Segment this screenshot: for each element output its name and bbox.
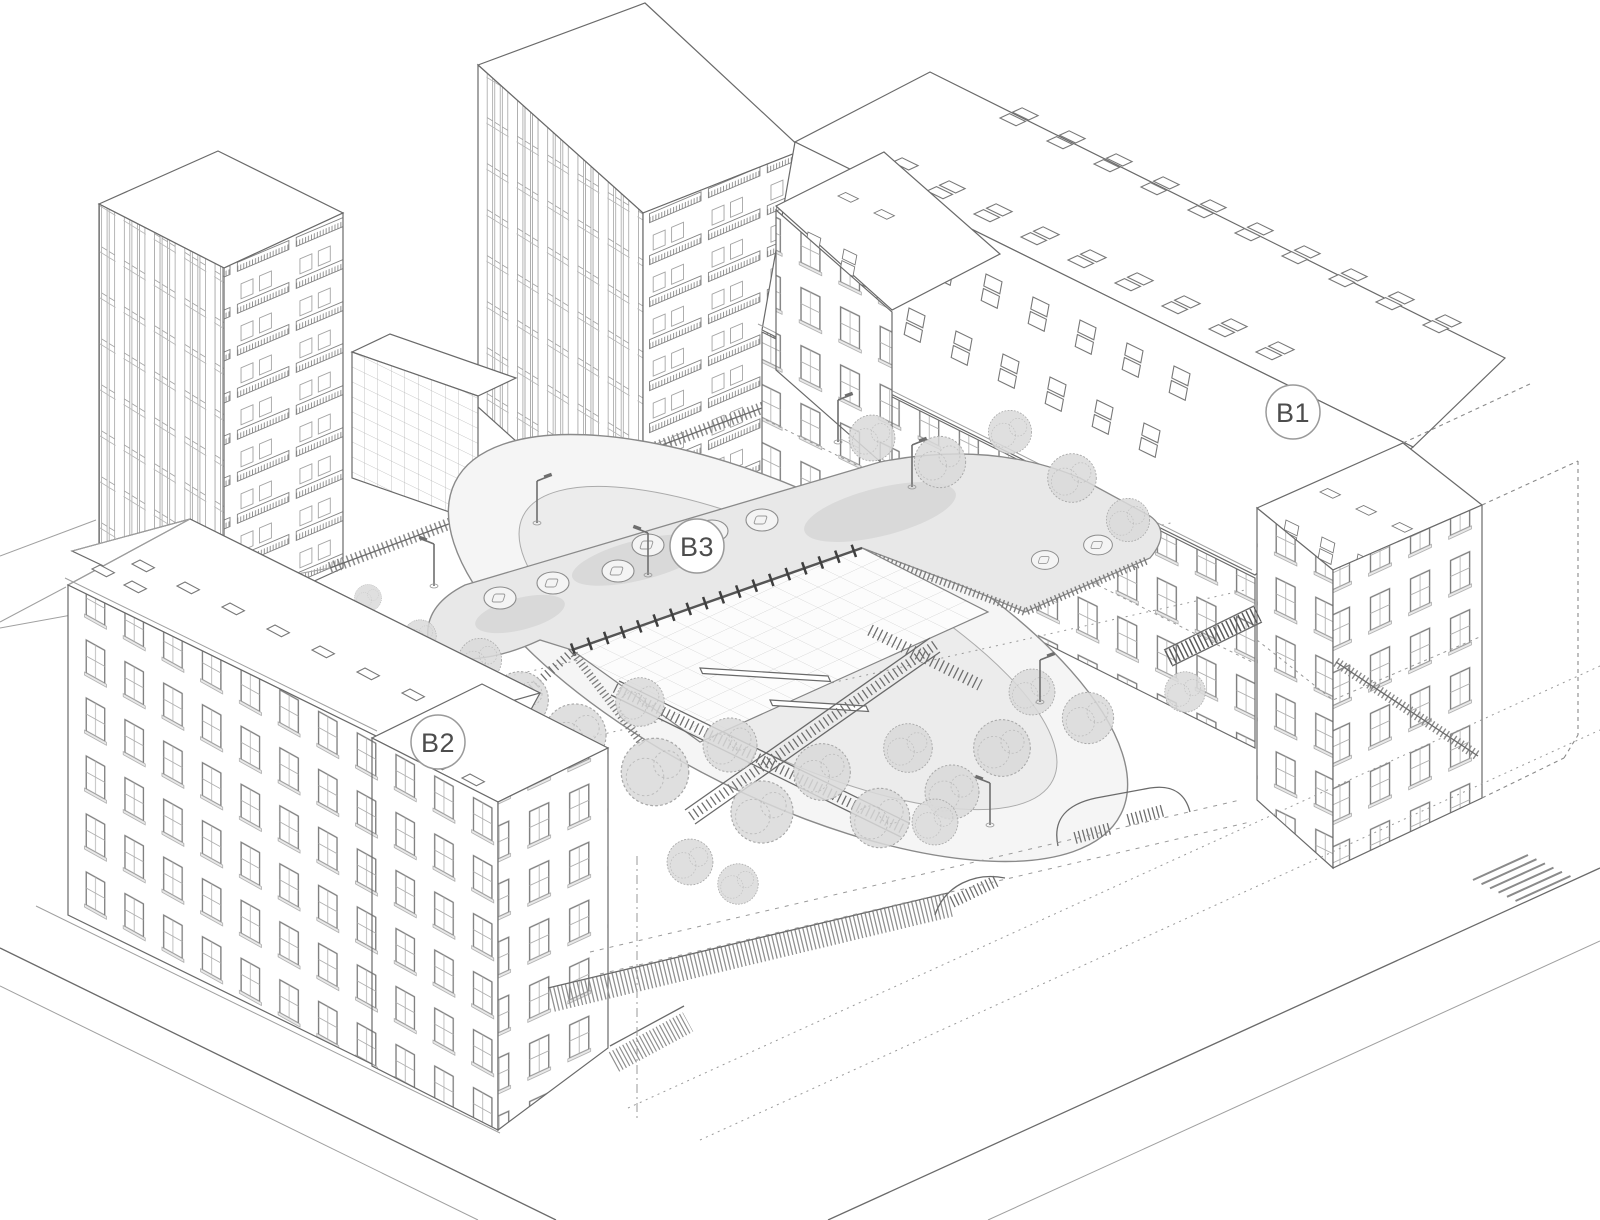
site-drawing: B1 B2 B3 bbox=[0, 0, 1600, 1220]
tree bbox=[974, 720, 1031, 777]
label-b3: B3 bbox=[670, 519, 724, 573]
tree bbox=[884, 724, 933, 773]
tree bbox=[703, 718, 757, 772]
label-b1-text: B1 bbox=[1276, 398, 1310, 428]
label-b1: B1 bbox=[1266, 385, 1320, 439]
tree bbox=[850, 788, 909, 847]
tree bbox=[849, 415, 895, 461]
b2-pavilion-facade-sw bbox=[372, 738, 498, 1130]
tree bbox=[1009, 669, 1055, 715]
tree bbox=[718, 864, 759, 905]
tree bbox=[1106, 498, 1149, 541]
tree bbox=[1062, 692, 1113, 743]
tree bbox=[914, 436, 965, 487]
tree bbox=[731, 781, 793, 843]
b2-end-pavilion bbox=[372, 684, 608, 1130]
tree bbox=[1048, 454, 1097, 503]
label-b3-text: B3 bbox=[680, 532, 714, 562]
tree bbox=[1165, 672, 1206, 713]
tree bbox=[621, 738, 689, 806]
tree bbox=[988, 410, 1031, 453]
label-b2-text: B2 bbox=[421, 728, 455, 758]
b1-right-pavilion bbox=[1257, 443, 1482, 868]
tree bbox=[794, 744, 851, 801]
tree bbox=[667, 839, 713, 885]
label-b2: B2 bbox=[411, 715, 465, 769]
tree bbox=[616, 678, 665, 727]
tree bbox=[912, 799, 958, 845]
